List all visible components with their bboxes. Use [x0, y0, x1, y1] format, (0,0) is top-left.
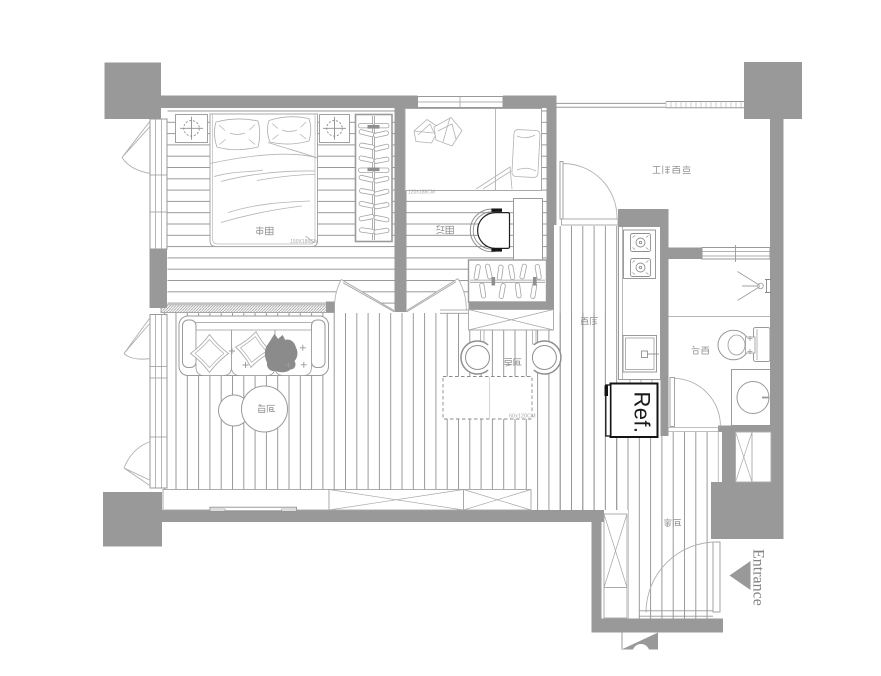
svg-text:Ref.: Ref. [630, 392, 655, 434]
svg-text:60x120CM: 60x120CM [509, 414, 536, 420]
svg-text:150X186CM: 150X186CM [290, 239, 318, 245]
svg-text:120x188CM: 120x188CM [408, 190, 435, 196]
svg-text:Entrance: Entrance [750, 549, 767, 606]
